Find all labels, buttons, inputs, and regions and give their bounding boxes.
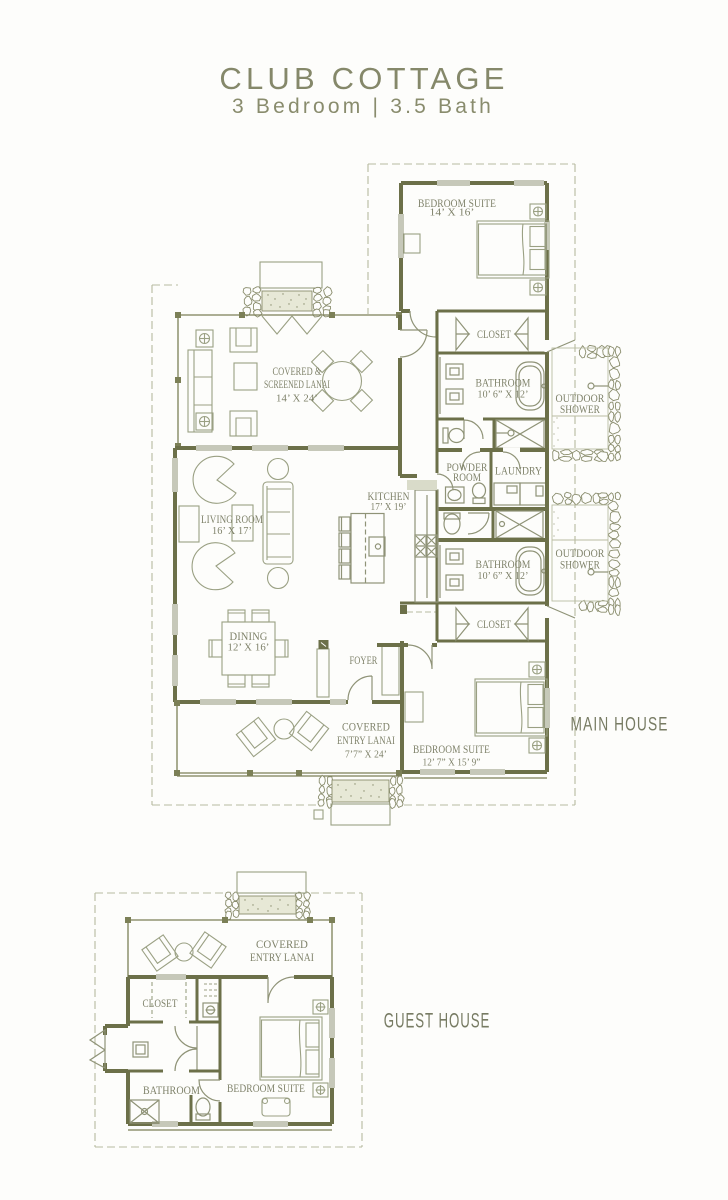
- svg-text:3 Bedroom | 3.5 Bath: 3 Bedroom | 3.5 Bath: [232, 95, 494, 118]
- svg-text:GUEST HOUSE: GUEST HOUSE: [384, 1008, 491, 1032]
- svg-text:DINING: DINING: [230, 629, 268, 643]
- svg-text:CLUB COTTAGE: CLUB COTTAGE: [219, 61, 508, 96]
- svg-text:ENTRY LANAI: ENTRY LANAI: [337, 733, 395, 747]
- svg-text:COVERED &: COVERED &: [273, 364, 322, 378]
- svg-text:SCREENED LANAI: SCREENED LANAI: [264, 377, 330, 391]
- svg-text:CLOSET: CLOSET: [477, 617, 512, 631]
- svg-text:17’ X 19’: 17’ X 19’: [371, 502, 407, 513]
- svg-text:SHOWER: SHOWER: [560, 558, 600, 572]
- svg-text:14’ X 24’: 14’ X 24’: [276, 394, 318, 405]
- svg-text:16’ X 17’: 16’ X 17’: [212, 526, 252, 537]
- svg-text:CLOSET: CLOSET: [143, 996, 179, 1010]
- svg-text:14’ X 16’: 14’ X 16’: [430, 208, 475, 219]
- svg-text:CLOSET: CLOSET: [477, 327, 512, 341]
- svg-text:7’7” X 24’: 7’7” X 24’: [345, 750, 387, 761]
- svg-text:12’ X 16’: 12’ X 16’: [228, 643, 270, 654]
- svg-text:SHOWER: SHOWER: [560, 402, 600, 416]
- svg-text:BATHROOM: BATHROOM: [143, 1083, 200, 1097]
- svg-text:BEDROOM SUITE: BEDROOM SUITE: [227, 1081, 305, 1095]
- svg-text:10’ 6” X 12’: 10’ 6” X 12’: [478, 390, 529, 401]
- svg-text:BEDROOM SUITE: BEDROOM SUITE: [413, 742, 490, 756]
- svg-text:FOYER: FOYER: [350, 653, 378, 667]
- svg-text:BATHROOM: BATHROOM: [476, 376, 531, 390]
- svg-text:ROOM: ROOM: [453, 470, 481, 484]
- svg-text:KITCHEN: KITCHEN: [368, 489, 410, 503]
- svg-text:12’ 7” X 15’ 9”: 12’ 7” X 15’ 9”: [423, 758, 481, 769]
- svg-text:ENTRY LANAI: ENTRY LANAI: [250, 950, 314, 964]
- svg-text:MAIN HOUSE: MAIN HOUSE: [571, 713, 669, 735]
- svg-text:LIVING ROOM: LIVING ROOM: [201, 512, 263, 526]
- svg-text:BATHROOM: BATHROOM: [476, 557, 531, 571]
- svg-text:LAUNDRY: LAUNDRY: [495, 464, 542, 478]
- svg-text:10’ 6” X 12’: 10’ 6” X 12’: [478, 571, 529, 582]
- svg-text:COVERED: COVERED: [256, 937, 308, 951]
- svg-text:COVERED: COVERED: [342, 720, 390, 734]
